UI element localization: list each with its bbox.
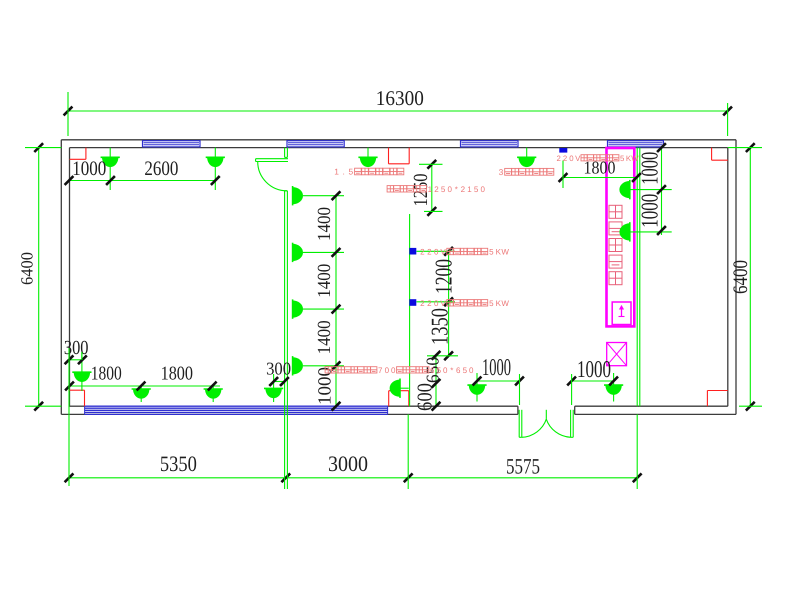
- svg-text:2: 2: [461, 185, 466, 194]
- svg-text:1350: 1350: [428, 308, 454, 345]
- svg-text:300: 300: [266, 359, 291, 379]
- svg-text:0: 0: [434, 248, 439, 257]
- svg-text:3000: 3000: [328, 451, 368, 476]
- svg-text:5: 5: [463, 366, 468, 375]
- svg-text:W: W: [501, 299, 509, 308]
- svg-text:*: *: [455, 185, 458, 194]
- svg-text:2600: 2600: [144, 158, 178, 180]
- svg-text:W: W: [501, 248, 509, 257]
- svg-text:1: 1: [428, 185, 433, 194]
- svg-text:5: 5: [437, 366, 442, 375]
- svg-text:1000: 1000: [638, 152, 664, 185]
- svg-text:1800: 1800: [91, 363, 122, 384]
- svg-text:2: 2: [563, 154, 567, 163]
- svg-text:5575: 5575: [506, 454, 540, 479]
- svg-text:0: 0: [391, 366, 396, 375]
- svg-text:2: 2: [434, 185, 439, 194]
- svg-text:1000: 1000: [482, 355, 511, 381]
- svg-text:6: 6: [456, 366, 461, 375]
- svg-text:0: 0: [480, 185, 485, 194]
- svg-text:5350: 5350: [160, 451, 197, 476]
- svg-text:600: 600: [413, 383, 437, 411]
- svg-text:5: 5: [348, 167, 353, 177]
- svg-text:1: 1: [334, 167, 339, 177]
- svg-text:0: 0: [447, 185, 452, 194]
- svg-text:0: 0: [469, 366, 474, 375]
- svg-text:1400: 1400: [315, 320, 335, 354]
- svg-text:1: 1: [467, 185, 472, 194]
- svg-text:300: 300: [64, 337, 89, 359]
- svg-text:0: 0: [434, 299, 439, 308]
- svg-text:2: 2: [427, 299, 432, 308]
- svg-text:3: 3: [499, 167, 504, 177]
- svg-text:6: 6: [430, 366, 435, 375]
- svg-text:2: 2: [420, 248, 425, 257]
- svg-text:1800: 1800: [161, 363, 194, 384]
- svg-text:V: V: [440, 248, 446, 257]
- svg-text:0: 0: [569, 154, 574, 163]
- svg-text:*: *: [450, 366, 453, 375]
- svg-text:5: 5: [489, 299, 494, 308]
- svg-text:5: 5: [441, 185, 446, 194]
- svg-text:16300: 16300: [376, 86, 424, 110]
- svg-text:1000: 1000: [638, 194, 664, 228]
- svg-text:5: 5: [474, 185, 479, 194]
- svg-text:2: 2: [427, 248, 432, 257]
- svg-text:6400: 6400: [18, 252, 37, 285]
- svg-text:0: 0: [443, 366, 448, 375]
- svg-text:W: W: [631, 154, 639, 163]
- svg-text:2: 2: [557, 154, 561, 163]
- svg-text:1200: 1200: [432, 259, 458, 294]
- svg-text:1400: 1400: [315, 264, 335, 298]
- svg-text:V: V: [440, 299, 446, 308]
- svg-text:1400: 1400: [315, 207, 335, 241]
- svg-text:6400: 6400: [730, 260, 752, 294]
- svg-text:7: 7: [378, 366, 383, 375]
- svg-text:.: .: [343, 167, 345, 177]
- svg-text:0: 0: [385, 366, 390, 375]
- svg-text:V: V: [575, 154, 581, 163]
- svg-text:2: 2: [420, 299, 425, 308]
- svg-text:5: 5: [489, 248, 494, 257]
- svg-text:5: 5: [620, 154, 625, 163]
- svg-text:1000: 1000: [72, 158, 106, 180]
- svg-text:1000: 1000: [577, 357, 611, 383]
